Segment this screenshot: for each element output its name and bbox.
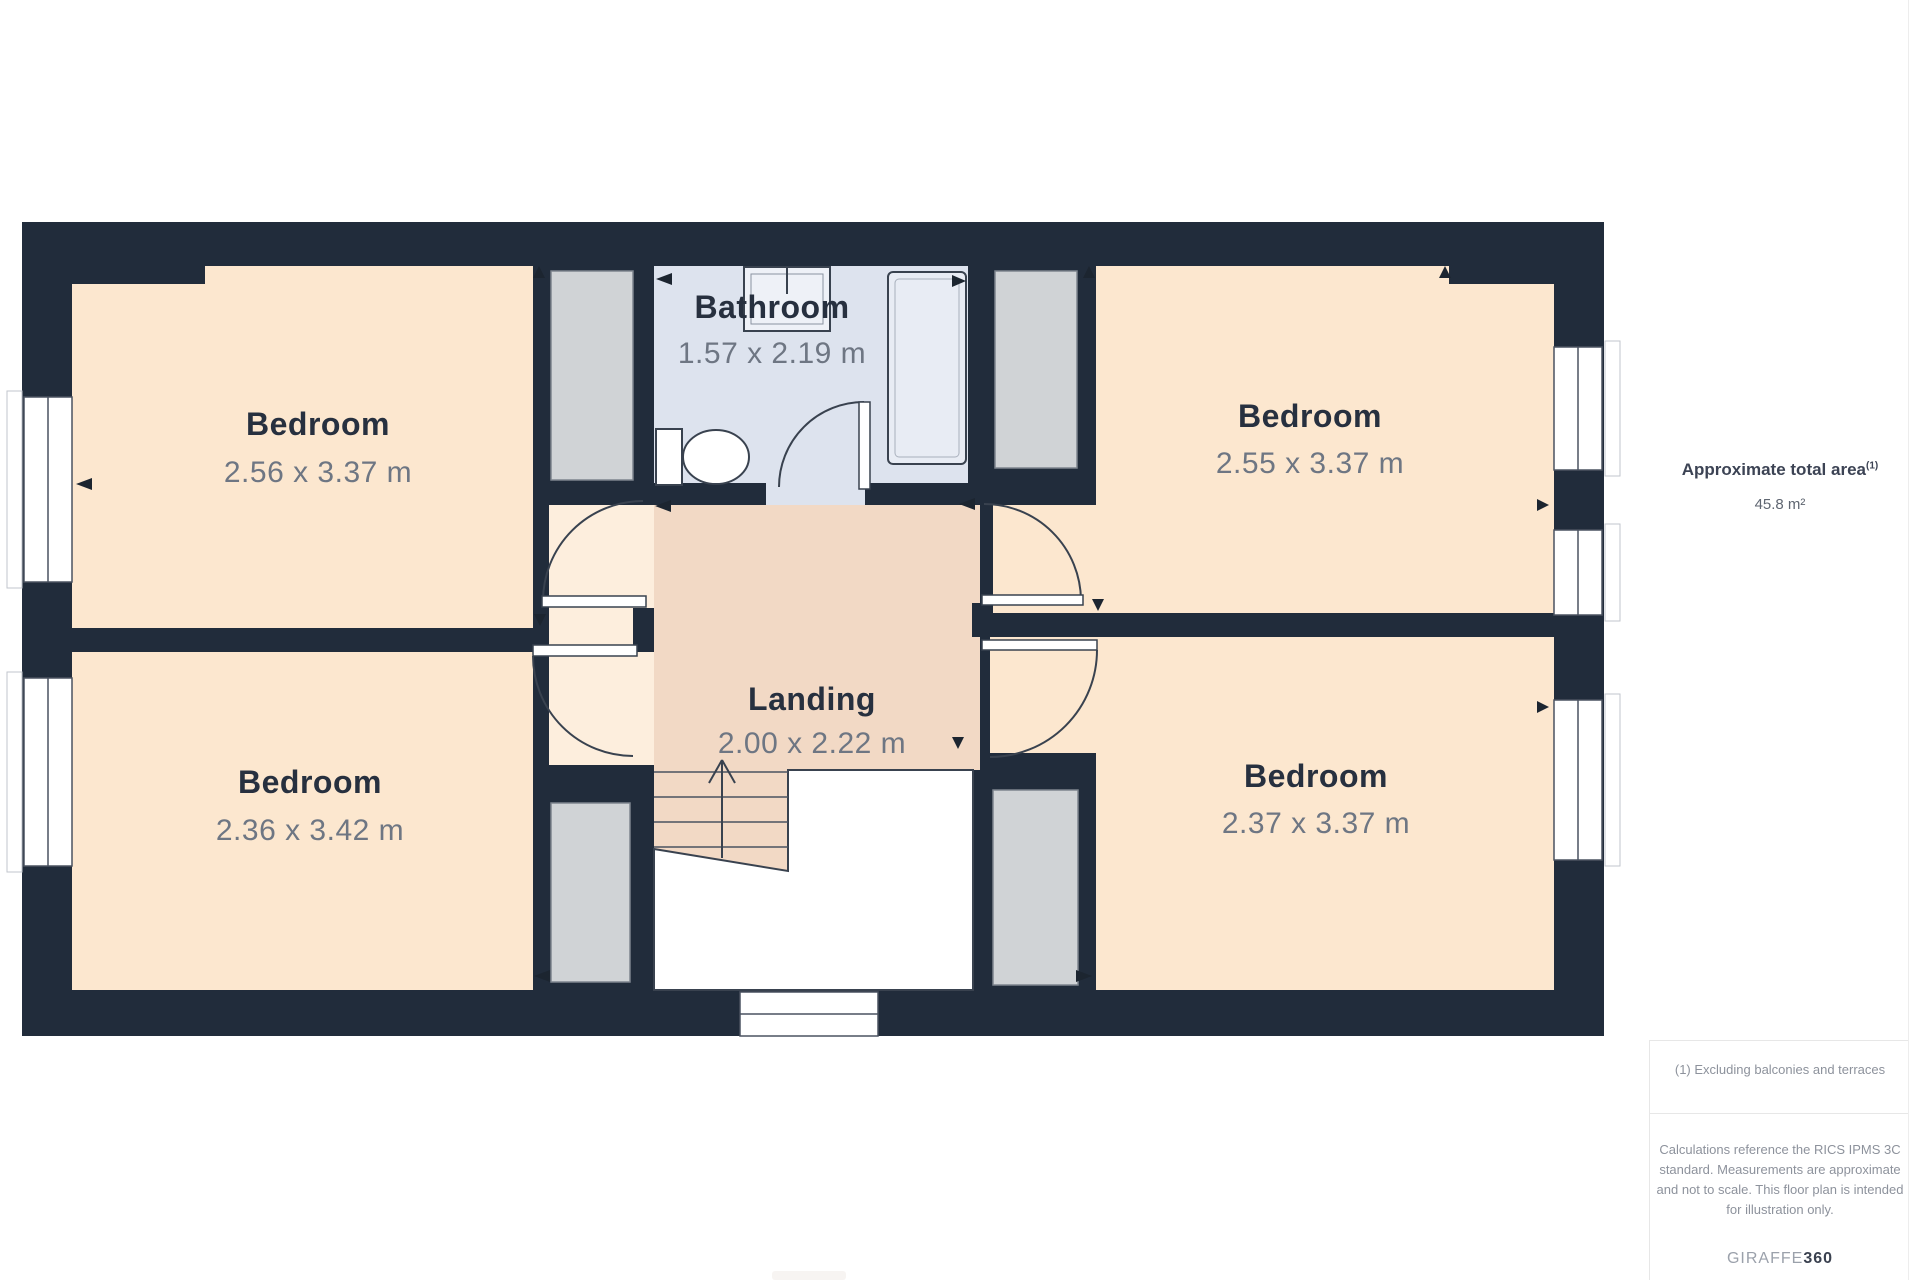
total-area-label: Approximate total area(1) <box>1640 460 1920 480</box>
room-dims: 1.57 x 2.19 m <box>678 337 866 370</box>
total-area-value: 45.8 m² <box>1640 496 1920 513</box>
toilet-bowl <box>683 430 749 484</box>
brand-logo: GIRAFFE360 <box>1640 1250 1920 1268</box>
divider <box>1649 1040 1909 1041</box>
panel-border <box>1649 1040 1650 1280</box>
door-leaf <box>982 640 1097 650</box>
room-label: Landing <box>748 681 876 717</box>
panel-border <box>1908 0 1909 1280</box>
closet <box>551 803 630 982</box>
room-label: Bedroom <box>1238 398 1382 434</box>
divider <box>1649 1113 1909 1114</box>
room-dims: 2.00 x 2.22 m <box>718 727 906 760</box>
closet <box>993 790 1078 985</box>
brand-logo-primary: GIRAFFE <box>1727 1250 1803 1267</box>
room-label: Bathroom <box>694 289 849 325</box>
room-label: Bedroom <box>246 406 390 442</box>
room-dims: 2.36 x 3.42 m <box>216 814 404 847</box>
disclaimer-text: Calculations reference the RICS IPMS 3C … <box>1652 1140 1908 1221</box>
footnote-marker: (1) <box>1866 460 1878 471</box>
door-leaf <box>982 595 1083 605</box>
toilet-tank <box>656 429 682 485</box>
door-leaf <box>859 402 870 489</box>
bedroom-top-right-floor <box>1096 266 1554 613</box>
door-leaf <box>533 645 637 656</box>
shower <box>888 272 966 464</box>
room-dims: 2.37 x 3.37 m <box>1222 807 1410 840</box>
area-footnote: (1) Excluding balconies and terraces <box>1640 1062 1920 1077</box>
clipped-label-fragment <box>772 1271 846 1280</box>
brand-logo-secondary: 360 <box>1803 1250 1833 1267</box>
bedroom-top-left-floor <box>72 266 533 628</box>
room-dims: 2.55 x 3.37 m <box>1216 447 1404 480</box>
door-leaf <box>542 596 646 607</box>
room-label: Bedroom <box>1244 758 1388 794</box>
room-dims: 2.56 x 3.37 m <box>224 456 412 489</box>
total-area-text: Approximate total area <box>1682 460 1866 479</box>
floor-plan-drawing: Bedroom 2.56 x 3.37 m Bedroom 2.55 x 3.3… <box>0 0 1920 1280</box>
floor-plan-page: Bedroom 2.56 x 3.37 m Bedroom 2.55 x 3.3… <box>0 0 1920 1280</box>
room-label: Bedroom <box>238 764 382 800</box>
closet <box>995 271 1077 468</box>
closet <box>551 271 633 480</box>
